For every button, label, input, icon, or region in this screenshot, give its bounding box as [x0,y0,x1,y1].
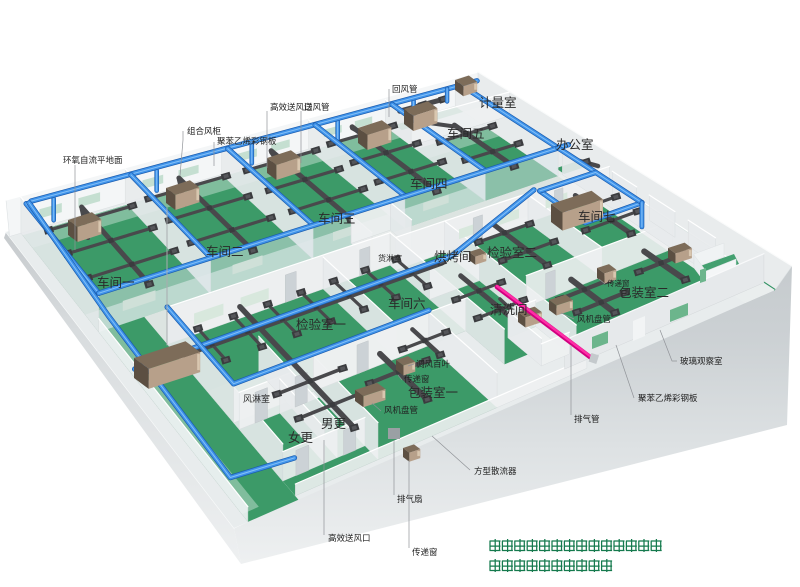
svg-text:车间四: 车间四 [410,176,448,191]
svg-text:传递窗: 传递窗 [412,547,438,557]
svg-text:清洗间: 清洗间 [490,303,528,317]
svg-text:调风百叶: 调风百叶 [416,359,451,369]
svg-text:排气扇: 排气扇 [397,494,423,504]
svg-text:环氧自流平地面: 环氧自流平地面 [63,155,123,165]
svg-text:聚苯乙烯彩钢板: 聚苯乙烯彩钢板 [638,393,698,403]
svg-text:排气管: 排气管 [574,414,600,424]
svg-text:组合风柜: 组合风柜 [187,126,222,136]
svg-text:计量室: 计量室 [479,95,517,110]
svg-text:传递窗: 传递窗 [404,374,430,384]
svg-text:女更: 女更 [288,430,314,445]
svg-text:玻璃观察室: 玻璃观察室 [680,356,723,366]
svg-text:包装室一: 包装室一 [408,385,458,400]
svg-text:办公室: 办公室 [556,137,594,152]
svg-text:烘烤间: 烘烤间 [434,249,472,264]
svg-text:包装室二: 包装室二 [619,285,669,300]
svg-text:车间二: 车间二 [206,244,244,259]
svg-text:方型散流器: 方型散流器 [474,466,517,476]
svg-text:聚苯乙烯彩钢板: 聚苯乙烯彩钢板 [217,136,277,146]
svg-text:检验室一: 检验室一 [296,317,346,332]
svg-text:男更: 男更 [321,417,347,431]
svg-text:车间三: 车间三 [318,211,356,226]
svg-text:回风管: 回风管 [392,84,418,94]
svg-text:送风管: 送风管 [304,102,330,112]
svg-text:车间五: 车间五 [447,126,485,141]
svg-text:车间七: 车间七 [578,209,616,224]
svg-text:检验室二: 检验室二 [487,245,537,260]
svg-text:风淋室: 风淋室 [243,393,270,404]
svg-text:货淋室: 货淋室 [378,253,402,263]
svg-text:车间六: 车间六 [388,296,426,311]
svg-text:风机盘管: 风机盘管 [577,314,611,324]
svg-text:车间一: 车间一 [97,275,135,290]
svg-text:风机盘管: 风机盘管 [384,405,418,415]
svg-text:高效送风口: 高效送风口 [328,533,371,543]
